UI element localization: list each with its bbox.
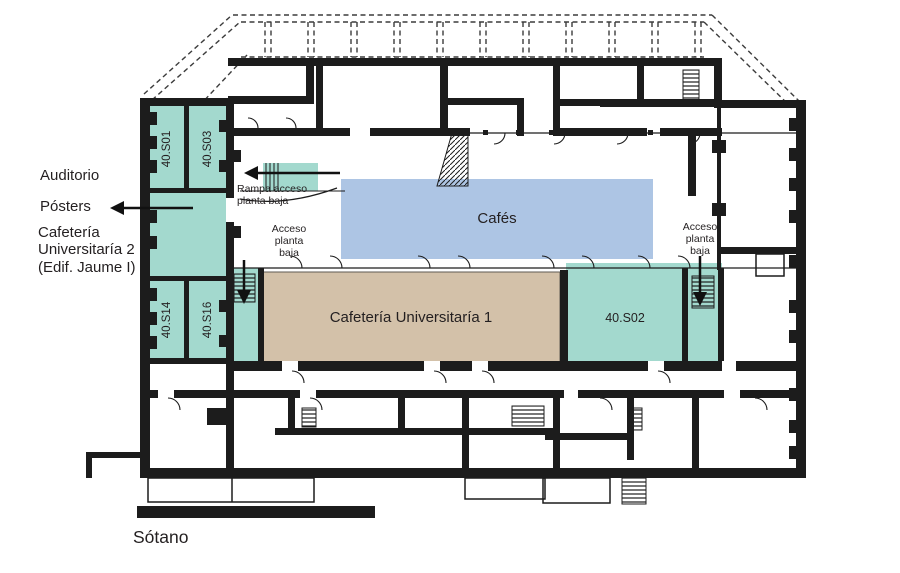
- stair-bottom-edge: [622, 478, 646, 504]
- room-40s14-label: 40.S14: [161, 302, 173, 338]
- stair-lower-center: [512, 406, 544, 426]
- acceso-planta-baja-left-label: Acceso planta baja: [260, 224, 318, 259]
- room-40s16-label: 40.S16: [202, 302, 214, 338]
- auditorio-label: Auditorio: [40, 167, 99, 184]
- cafeteria-universitaria-1-label: Cafetería Universitaría 1: [262, 309, 560, 326]
- floor-plan: Auditorio Pósters Cafetería Universitarí…: [0, 0, 900, 573]
- room-40s03-label: 40.S03: [202, 131, 214, 167]
- stair-top-right: [683, 70, 699, 100]
- posters-label: Pósters: [40, 198, 91, 215]
- stair-lower-left: [302, 408, 316, 427]
- rampa-acceso-label: Rampa acceso planta baja: [237, 184, 307, 208]
- room-40s01-label: 40.S01: [161, 131, 173, 167]
- floor-plan-svg: [0, 0, 900, 573]
- stair-hall-hatch: [437, 133, 468, 186]
- cafeteria-universitaria-2-label: Cafetería Universitaría 2 (Edif. Jaume I…: [38, 224, 188, 276]
- floor-name-label: Sótano: [133, 527, 188, 547]
- acceso-planta-baja-right-label: Acceso planta baja: [672, 222, 728, 257]
- stair-lower-right: [628, 408, 642, 430]
- cafes-label: Cafés: [341, 210, 653, 227]
- room-40s02-label: 40.S02: [568, 311, 682, 326]
